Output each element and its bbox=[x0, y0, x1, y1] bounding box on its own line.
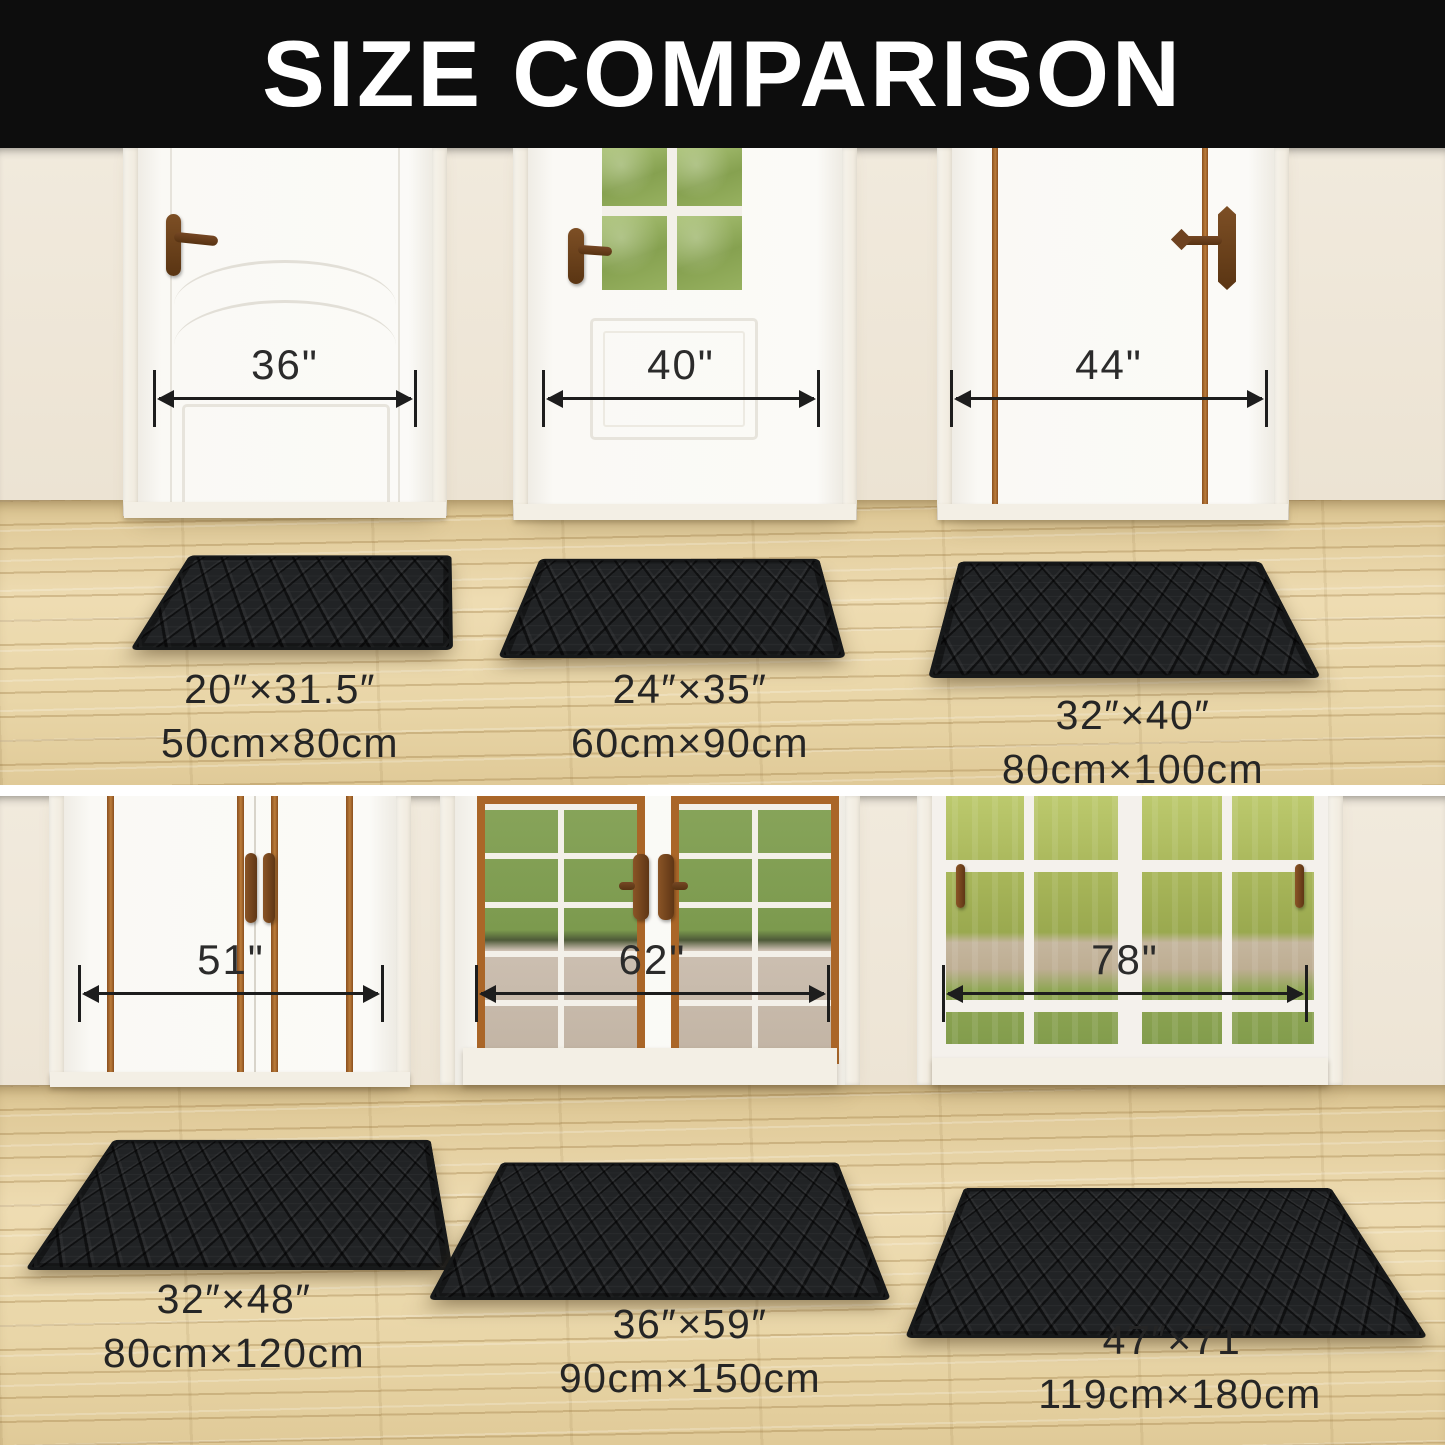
measure-arrowhead bbox=[1247, 390, 1264, 408]
door-brown-trim bbox=[992, 148, 998, 520]
measure-tick bbox=[414, 370, 417, 427]
door-stile-line bbox=[398, 148, 400, 516]
door-frame bbox=[1328, 796, 1343, 1085]
photo-bottom-row: 51" 62" 78" 32″×48″ bbox=[0, 796, 1445, 1445]
door-stile-line bbox=[170, 148, 172, 516]
photo-top-row: 36" 40" 44" 20″×31.5 bbox=[0, 148, 1445, 785]
mat-size-cm: 80cm×120cm bbox=[34, 1326, 434, 1380]
door-40-inch bbox=[528, 148, 842, 520]
mat-size-cm: 60cm×90cm bbox=[505, 716, 875, 770]
window-pane bbox=[677, 148, 742, 206]
doormat-36x59 bbox=[428, 1162, 891, 1300]
measure-tick bbox=[827, 965, 830, 1022]
door-handle bbox=[633, 854, 649, 920]
measure-arrowhead bbox=[479, 985, 496, 1003]
doormat-24x35 bbox=[498, 559, 846, 658]
door-36-inch bbox=[138, 148, 432, 516]
measure-arrow-line bbox=[159, 397, 411, 400]
measure-tick bbox=[1305, 965, 1308, 1022]
window-pane bbox=[677, 216, 742, 290]
door-frame bbox=[49, 796, 64, 1085]
window-pane bbox=[602, 216, 667, 290]
width-measurement-36: 36" bbox=[153, 343, 417, 439]
mat-size-inches: 36″×59″ bbox=[480, 1297, 900, 1351]
measure-arrowhead bbox=[363, 985, 380, 1003]
door-threshold bbox=[938, 504, 1288, 520]
door-threshold bbox=[463, 1048, 837, 1085]
width-measurement-51: 51" bbox=[78, 938, 384, 1034]
mat-size-cm: 50cm×80cm bbox=[95, 716, 465, 770]
door-handle bbox=[245, 853, 257, 923]
mat-size-label: 24″×35″ 60cm×90cm bbox=[505, 662, 875, 770]
door-threshold bbox=[50, 1072, 410, 1087]
measure-label: 51" bbox=[78, 936, 384, 984]
mat-size-cm: 90cm×150cm bbox=[480, 1351, 900, 1405]
door-threshold bbox=[124, 502, 446, 518]
measure-arrow-line bbox=[481, 992, 824, 995]
mat-size-cm: 119cm×180cm bbox=[950, 1367, 1410, 1421]
door-threshold bbox=[514, 504, 856, 520]
measure-label: 40" bbox=[542, 341, 820, 389]
measure-arrowhead bbox=[157, 390, 174, 408]
mat-size-inches: 47″×71″ bbox=[950, 1313, 1410, 1367]
measure-tick bbox=[78, 965, 81, 1022]
measure-tick bbox=[542, 370, 545, 427]
mat-size-label: 36″×59″ 90cm×150cm bbox=[480, 1297, 900, 1405]
door-handle bbox=[263, 853, 275, 923]
door-frame bbox=[123, 148, 138, 516]
mat-size-inches: 32″×40″ bbox=[943, 688, 1323, 742]
measure-arrow-line bbox=[956, 397, 1262, 400]
door-frame bbox=[1274, 148, 1289, 520]
measure-arrowhead bbox=[946, 985, 963, 1003]
door-threshold bbox=[932, 1058, 1328, 1085]
door-handle bbox=[1295, 864, 1304, 908]
banner-title: SIZE COMPARISON bbox=[262, 20, 1183, 128]
measure-tick bbox=[475, 965, 478, 1022]
measure-arrow-line bbox=[548, 397, 814, 400]
width-measurement-40: 40" bbox=[542, 343, 820, 439]
door-frame bbox=[440, 796, 455, 1085]
measure-tick bbox=[942, 965, 945, 1022]
width-measurement-44: 44" bbox=[950, 343, 1268, 439]
size-comparison-infographic: SIZE COMPARISON bbox=[0, 0, 1445, 1445]
measure-tick bbox=[1265, 370, 1268, 427]
door-frame bbox=[845, 796, 860, 1085]
mat-size-label: 32″×40″ 80cm×100cm bbox=[943, 688, 1323, 785]
door-handle bbox=[1218, 206, 1236, 290]
mat-size-label: 32″×48″ 80cm×120cm bbox=[34, 1272, 434, 1380]
window-pane bbox=[602, 148, 667, 206]
door-frame bbox=[937, 148, 952, 520]
measure-label: 62" bbox=[475, 936, 830, 984]
measure-arrow-line bbox=[84, 992, 378, 995]
measure-arrowhead bbox=[546, 390, 563, 408]
measure-arrowhead bbox=[954, 390, 971, 408]
header-banner: SIZE COMPARISON bbox=[0, 0, 1445, 148]
measure-tick bbox=[950, 370, 953, 427]
mat-size-inches: 20″×31.5″ bbox=[95, 662, 465, 716]
mat-size-cm: 80cm×100cm bbox=[943, 742, 1323, 785]
measure-tick bbox=[153, 370, 156, 427]
mat-size-label: 47″×71″ 119cm×180cm bbox=[950, 1313, 1410, 1421]
measure-arrowhead bbox=[1287, 985, 1304, 1003]
door-frame bbox=[842, 148, 857, 520]
door-frame bbox=[432, 148, 447, 516]
door-handle-stem bbox=[672, 882, 688, 890]
mat-size-inches: 24″×35″ bbox=[505, 662, 875, 716]
door-handle bbox=[956, 864, 965, 908]
door-handle-stem bbox=[619, 882, 635, 890]
door-frame bbox=[917, 796, 932, 1085]
door-handle bbox=[166, 214, 181, 276]
door-window bbox=[602, 148, 742, 290]
measure-arrow-line bbox=[948, 992, 1302, 995]
measure-label: 78" bbox=[942, 936, 1308, 984]
width-measurement-78: 78" bbox=[942, 938, 1308, 1034]
door-44-inch bbox=[952, 148, 1274, 520]
mat-size-label: 20″×31.5″ 50cm×80cm bbox=[95, 662, 465, 770]
width-measurement-62: 62" bbox=[475, 938, 830, 1034]
measure-arrowhead bbox=[799, 390, 816, 408]
measure-arrowhead bbox=[809, 985, 826, 1003]
door-handle-knob bbox=[1171, 229, 1192, 250]
measure-tick bbox=[817, 370, 820, 427]
measure-label: 36" bbox=[153, 341, 417, 389]
door-frame bbox=[513, 148, 528, 520]
door-brown-trim bbox=[1202, 148, 1208, 520]
door-frame bbox=[396, 796, 411, 1085]
door-handle bbox=[568, 228, 584, 284]
measure-tick bbox=[381, 965, 384, 1022]
measure-label: 44" bbox=[950, 341, 1268, 389]
mat-size-inches: 32″×48″ bbox=[34, 1272, 434, 1326]
measure-arrowhead bbox=[396, 390, 413, 408]
doormat-32x40 bbox=[928, 562, 1321, 678]
measure-arrowhead bbox=[82, 985, 99, 1003]
